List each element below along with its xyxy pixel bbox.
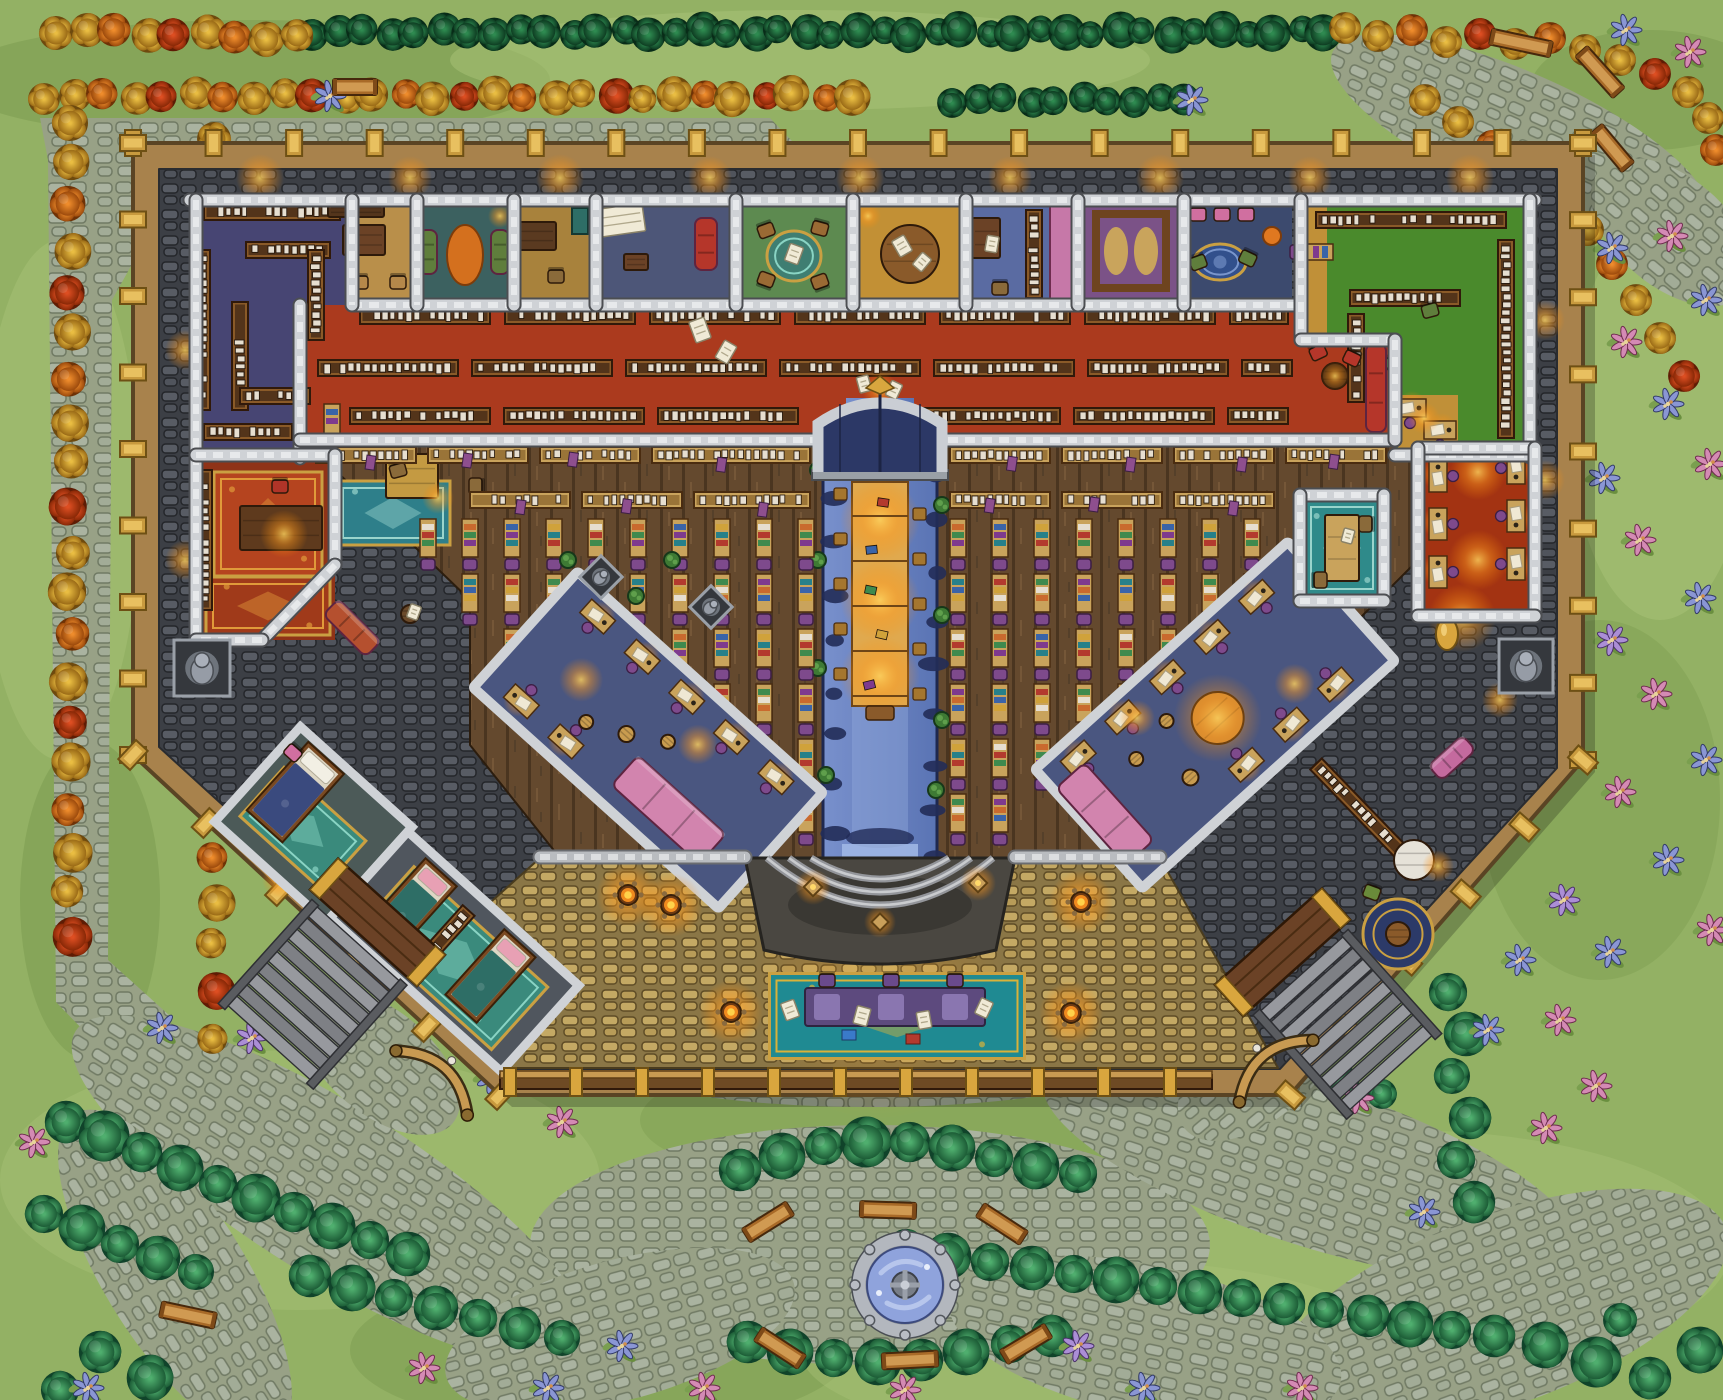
tree bbox=[1012, 1143, 1059, 1190]
chair bbox=[272, 477, 288, 493]
study-desk bbox=[756, 684, 772, 735]
tree bbox=[232, 1174, 281, 1223]
wall-post bbox=[1570, 598, 1596, 614]
tree bbox=[53, 917, 93, 957]
hedge-shrub bbox=[578, 14, 612, 48]
tree bbox=[289, 1255, 331, 1298]
study-desk bbox=[992, 739, 1008, 790]
tree bbox=[1639, 58, 1671, 90]
wall-post bbox=[1494, 130, 1510, 156]
tree bbox=[79, 1331, 122, 1373]
hedge-shrub bbox=[1077, 21, 1104, 48]
plant bbox=[818, 767, 834, 783]
tree bbox=[841, 1117, 892, 1168]
study-desk bbox=[1076, 629, 1092, 680]
tree bbox=[1571, 1337, 1622, 1388]
tree bbox=[1430, 26, 1462, 58]
red-couch bbox=[1366, 344, 1386, 432]
wall-post bbox=[1011, 130, 1027, 156]
bookshelf bbox=[780, 360, 920, 376]
desk-column bbox=[420, 519, 436, 570]
bookshelf bbox=[504, 408, 644, 424]
hedge-shrub bbox=[1181, 18, 1208, 45]
hedge-shrub bbox=[994, 15, 1031, 52]
hedge-shrub bbox=[816, 21, 844, 49]
bookshelf bbox=[1350, 290, 1460, 306]
tree bbox=[1263, 1283, 1305, 1326]
wall-post bbox=[120, 135, 146, 151]
bookshelf bbox=[1242, 360, 1292, 376]
tree bbox=[157, 18, 190, 51]
wall-post bbox=[120, 212, 146, 228]
tree bbox=[309, 1203, 356, 1250]
chair bbox=[819, 971, 835, 987]
tree bbox=[199, 1165, 237, 1203]
tree bbox=[49, 275, 84, 310]
tree bbox=[628, 85, 656, 113]
reception-station bbox=[942, 994, 968, 1020]
tree bbox=[48, 572, 86, 611]
study-desk bbox=[504, 519, 520, 570]
lamp-glow bbox=[1321, 362, 1349, 390]
tree bbox=[975, 1139, 1013, 1177]
tree bbox=[218, 21, 251, 54]
tree bbox=[49, 662, 88, 701]
wall-post bbox=[528, 130, 544, 156]
tree bbox=[1347, 1295, 1389, 1337]
round-table bbox=[1386, 922, 1410, 946]
bookshelf bbox=[308, 250, 324, 340]
book bbox=[842, 1030, 856, 1040]
sofa bbox=[491, 230, 509, 274]
tree bbox=[1442, 106, 1474, 138]
wall-post bbox=[206, 130, 222, 156]
tree bbox=[197, 842, 228, 873]
tree bbox=[1010, 1246, 1055, 1291]
tree bbox=[97, 13, 131, 46]
study-desk bbox=[798, 629, 814, 680]
lamp-glow bbox=[1408, 402, 1440, 434]
plant bbox=[628, 588, 644, 604]
tree bbox=[773, 75, 810, 111]
wall-post bbox=[1092, 130, 1108, 156]
tree bbox=[1387, 1301, 1434, 1348]
tree bbox=[1223, 1279, 1261, 1317]
lamp-glow bbox=[1422, 850, 1454, 882]
wall-post bbox=[120, 671, 146, 687]
tree bbox=[1093, 1256, 1140, 1303]
tree bbox=[196, 928, 226, 958]
wall-post bbox=[120, 365, 146, 381]
wall-post bbox=[1570, 135, 1596, 151]
wall-post bbox=[1414, 130, 1430, 156]
chair bbox=[1359, 516, 1375, 532]
orange-rug bbox=[447, 225, 483, 285]
tree bbox=[1178, 1270, 1223, 1315]
wall-post bbox=[286, 130, 302, 156]
wall-post bbox=[608, 130, 624, 156]
tree bbox=[248, 22, 283, 58]
wall-post bbox=[931, 130, 947, 156]
study-desk bbox=[462, 519, 478, 570]
study-desk bbox=[950, 684, 966, 735]
orange-pouf bbox=[1263, 227, 1281, 245]
brazier bbox=[699, 980, 763, 1044]
study-desk bbox=[1160, 574, 1176, 625]
tree bbox=[55, 233, 92, 270]
wall-post bbox=[367, 130, 383, 156]
tree bbox=[54, 706, 87, 739]
wall-post bbox=[120, 518, 146, 534]
brazier bbox=[1039, 981, 1103, 1045]
scroll bbox=[985, 235, 1000, 253]
bookshelf bbox=[1026, 210, 1042, 298]
hedge-shrub bbox=[712, 19, 741, 48]
tree bbox=[52, 105, 88, 141]
study-desk bbox=[714, 629, 730, 680]
hedge-shrub bbox=[1039, 86, 1068, 115]
study-desk bbox=[1076, 574, 1092, 625]
hedge-shrub bbox=[890, 17, 926, 53]
plant bbox=[664, 552, 680, 568]
hedge-shrub bbox=[527, 15, 561, 49]
study-desk bbox=[950, 794, 966, 845]
lantern bbox=[960, 865, 996, 901]
tree bbox=[197, 1024, 227, 1054]
tree bbox=[567, 79, 595, 107]
study-desk bbox=[756, 574, 772, 625]
study-desk bbox=[756, 629, 772, 680]
tree bbox=[971, 1243, 1009, 1281]
wall-post bbox=[1570, 675, 1596, 691]
wall-post bbox=[1253, 130, 1269, 156]
hedge-shrub bbox=[841, 12, 877, 48]
wall-post bbox=[1570, 444, 1596, 460]
tree bbox=[237, 82, 270, 115]
scroll bbox=[916, 1011, 932, 1030]
tree bbox=[1329, 12, 1361, 44]
tree bbox=[459, 1299, 497, 1337]
tree bbox=[51, 362, 86, 397]
study-desk bbox=[714, 519, 730, 570]
study-desk bbox=[630, 519, 646, 570]
tree bbox=[56, 536, 90, 570]
fountain-layer bbox=[850, 1230, 960, 1340]
study-desk bbox=[1076, 519, 1092, 570]
study-desk bbox=[756, 519, 772, 570]
tree bbox=[1059, 1155, 1097, 1193]
garden-bench bbox=[860, 1201, 917, 1219]
tree bbox=[50, 186, 86, 222]
wall-post bbox=[120, 594, 146, 610]
lantern bbox=[864, 906, 896, 938]
tree bbox=[25, 1195, 63, 1233]
study-desk bbox=[992, 684, 1008, 735]
study-desk bbox=[1034, 574, 1050, 625]
bookshelf bbox=[626, 360, 766, 376]
table-glow bbox=[840, 636, 920, 716]
hedge-shrub bbox=[631, 17, 666, 52]
tree bbox=[1672, 76, 1704, 108]
table bbox=[624, 254, 648, 270]
desk-lamp-glow bbox=[260, 510, 308, 558]
tree bbox=[1453, 1181, 1495, 1224]
tree bbox=[929, 1124, 976, 1171]
bookshelf bbox=[204, 424, 292, 440]
plant bbox=[934, 712, 950, 728]
tree bbox=[719, 1149, 761, 1191]
tree bbox=[198, 884, 235, 922]
lantern bbox=[795, 869, 831, 905]
study-desk bbox=[798, 519, 814, 570]
study-desk bbox=[992, 629, 1008, 680]
tree bbox=[51, 793, 84, 826]
study-desk bbox=[798, 684, 814, 735]
hedge-shrub bbox=[941, 11, 977, 48]
plant bbox=[934, 497, 950, 513]
map-render-root bbox=[0, 0, 1723, 1400]
hedge-shrub bbox=[937, 88, 967, 118]
tree bbox=[54, 313, 91, 350]
tree bbox=[1429, 973, 1467, 1011]
brazier bbox=[1049, 870, 1113, 934]
chair bbox=[390, 273, 406, 289]
table-glow bbox=[840, 560, 920, 640]
writing-desk bbox=[516, 222, 556, 250]
study-desk bbox=[992, 574, 1008, 625]
tree bbox=[507, 83, 536, 112]
pink-wall-panel bbox=[1050, 205, 1074, 303]
wall-post bbox=[850, 130, 866, 156]
tree bbox=[1644, 322, 1676, 354]
table-glow bbox=[840, 480, 920, 560]
garden-fountain bbox=[850, 1230, 960, 1340]
tree bbox=[101, 1225, 139, 1263]
study-desk bbox=[1202, 519, 1218, 570]
bookshelf bbox=[1316, 212, 1506, 228]
study-desk bbox=[950, 739, 966, 790]
hedge-shrub bbox=[398, 17, 429, 48]
tree bbox=[544, 1320, 580, 1356]
study-desk bbox=[1034, 519, 1050, 570]
bookshelf bbox=[658, 408, 798, 424]
study-desk bbox=[1118, 519, 1134, 570]
statue bbox=[174, 640, 230, 696]
table bbox=[1325, 515, 1359, 581]
chair bbox=[992, 279, 1008, 295]
bookshelf bbox=[472, 360, 612, 376]
plant bbox=[934, 607, 950, 623]
tree bbox=[178, 1254, 214, 1290]
bookshelf bbox=[1228, 408, 1288, 424]
plant bbox=[928, 782, 944, 798]
study-desk bbox=[950, 629, 966, 680]
reception-station bbox=[814, 994, 840, 1020]
study-desk bbox=[1160, 519, 1176, 570]
tree bbox=[1409, 84, 1441, 116]
tree bbox=[122, 1132, 162, 1172]
hedge-shrub bbox=[1092, 87, 1120, 115]
wall-post bbox=[120, 441, 146, 457]
tree bbox=[1603, 1303, 1637, 1337]
tree bbox=[1629, 1357, 1671, 1400]
tree bbox=[351, 1221, 389, 1259]
hedge-shrub bbox=[1204, 11, 1241, 48]
chair bbox=[883, 971, 899, 987]
tree bbox=[1692, 102, 1723, 134]
map-canvas bbox=[0, 0, 1723, 1400]
study-desk bbox=[1118, 574, 1134, 625]
tree bbox=[1362, 20, 1394, 52]
brazier bbox=[596, 863, 660, 927]
plant bbox=[560, 552, 576, 568]
tree bbox=[815, 1339, 853, 1377]
tree bbox=[1437, 1141, 1475, 1179]
bookshelf bbox=[1498, 240, 1514, 438]
chair bbox=[947, 971, 963, 987]
bookshelf bbox=[1074, 408, 1214, 424]
tree bbox=[1677, 1327, 1723, 1374]
tree bbox=[39, 16, 73, 50]
tree bbox=[146, 81, 177, 112]
tree bbox=[499, 1307, 541, 1349]
tree bbox=[450, 82, 479, 111]
tree bbox=[1055, 1255, 1093, 1293]
study-desk bbox=[504, 574, 520, 625]
tree bbox=[1449, 1097, 1492, 1139]
tree bbox=[1396, 14, 1428, 46]
wall-post bbox=[1570, 212, 1596, 228]
tree bbox=[51, 742, 90, 781]
wall-post bbox=[120, 288, 146, 304]
study-desk bbox=[462, 574, 478, 625]
study-desk bbox=[420, 519, 436, 570]
wall-post bbox=[1570, 366, 1596, 382]
tree bbox=[477, 76, 512, 111]
statue bbox=[1499, 639, 1553, 693]
tree bbox=[414, 1286, 459, 1331]
hedge-shrub bbox=[987, 83, 1016, 112]
tree bbox=[56, 617, 90, 651]
desk-column bbox=[1034, 519, 1050, 790]
tree bbox=[51, 404, 89, 442]
study-desk bbox=[672, 574, 688, 625]
wall-post bbox=[1333, 130, 1349, 156]
tree bbox=[86, 78, 117, 109]
hedge-shrub bbox=[1119, 87, 1150, 118]
round-table bbox=[881, 225, 939, 283]
tree bbox=[54, 444, 88, 478]
wall-post bbox=[689, 130, 705, 156]
garden-bench bbox=[333, 79, 377, 95]
bookshelf bbox=[350, 408, 490, 424]
study-desk bbox=[950, 519, 966, 570]
tree bbox=[207, 82, 237, 113]
tree bbox=[1668, 360, 1700, 392]
tree bbox=[329, 1265, 376, 1312]
tree bbox=[415, 81, 450, 116]
tree bbox=[136, 1236, 181, 1281]
tree bbox=[375, 1279, 413, 1317]
study-desk bbox=[1034, 684, 1050, 735]
wall-post bbox=[1172, 130, 1188, 156]
tree bbox=[157, 1145, 204, 1192]
tree bbox=[386, 1232, 431, 1277]
tree bbox=[28, 83, 60, 115]
tree bbox=[1434, 1058, 1470, 1094]
oval-rug bbox=[1134, 227, 1158, 275]
study-desk bbox=[1118, 629, 1134, 680]
study-desk bbox=[798, 574, 814, 625]
hedge-shrub bbox=[346, 14, 377, 46]
study-desk bbox=[1034, 629, 1050, 680]
sofa bbox=[695, 218, 717, 270]
tree bbox=[657, 76, 693, 112]
tree bbox=[1473, 1315, 1515, 1357]
study-desk bbox=[992, 794, 1008, 845]
teal-cabinet bbox=[572, 208, 588, 234]
study-desk bbox=[992, 519, 1008, 570]
reception-station bbox=[878, 994, 904, 1020]
bookshelf bbox=[934, 360, 1074, 376]
chair bbox=[1311, 572, 1327, 588]
bookshelf bbox=[1088, 360, 1228, 376]
tree bbox=[53, 144, 89, 180]
oval-rug bbox=[1104, 227, 1128, 275]
hedge-shrub bbox=[1254, 15, 1291, 52]
tree bbox=[714, 81, 750, 117]
tree bbox=[49, 487, 87, 525]
hedge-shrub bbox=[451, 18, 482, 49]
hedge-shrub bbox=[763, 15, 791, 43]
tree bbox=[53, 833, 92, 873]
tree bbox=[281, 19, 313, 51]
fantasy-library-battlemap bbox=[0, 0, 1723, 1400]
study-desk bbox=[950, 574, 966, 625]
tree bbox=[58, 1205, 105, 1252]
tree bbox=[805, 1127, 843, 1165]
garden-bench bbox=[882, 1351, 939, 1370]
tree bbox=[51, 875, 83, 908]
tree bbox=[274, 1192, 314, 1232]
tree bbox=[759, 1133, 806, 1180]
tree bbox=[834, 79, 871, 116]
tree bbox=[1433, 1311, 1471, 1349]
tree bbox=[1522, 1322, 1569, 1369]
tree bbox=[890, 1122, 930, 1162]
hedge-shrub bbox=[1128, 17, 1155, 44]
wall-post bbox=[769, 130, 785, 156]
tree bbox=[1308, 1292, 1344, 1328]
chair bbox=[548, 267, 564, 283]
tree bbox=[79, 1111, 130, 1162]
tree bbox=[1620, 284, 1652, 316]
book bbox=[906, 1034, 920, 1044]
hedge-shrub bbox=[477, 18, 510, 51]
wall-post bbox=[447, 130, 463, 156]
tree bbox=[943, 1329, 990, 1376]
lamp-glow bbox=[422, 482, 454, 514]
bookshelf bbox=[318, 360, 458, 376]
wall-post bbox=[1570, 521, 1596, 537]
tree bbox=[1139, 1267, 1177, 1305]
wall-post bbox=[1570, 289, 1596, 305]
scroll bbox=[598, 203, 645, 237]
